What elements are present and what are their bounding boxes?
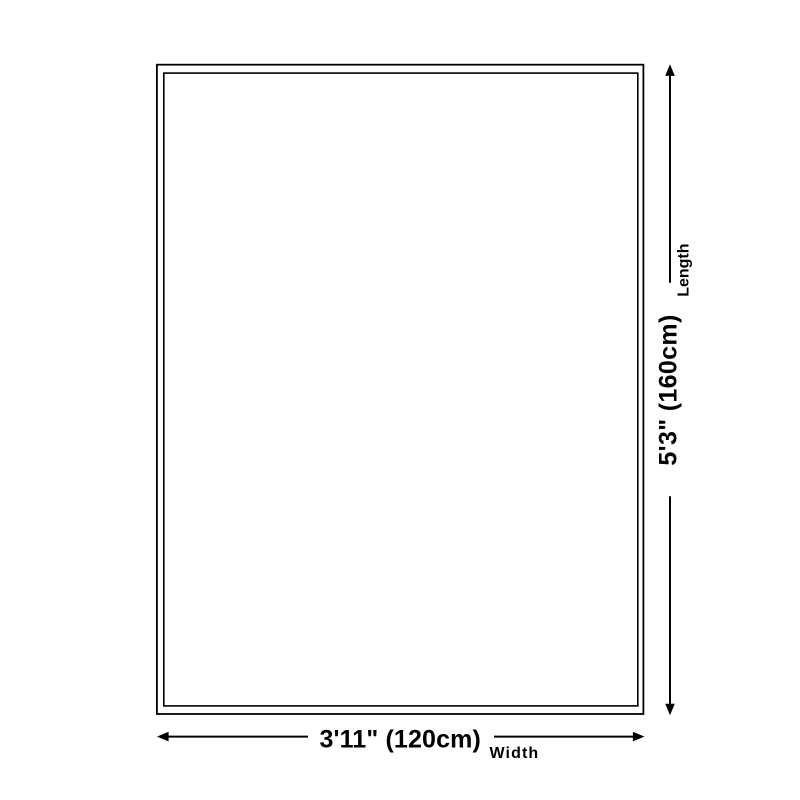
svg-text:Width: Width [490,745,540,762]
svg-text:Length: Length [676,243,693,296]
svg-text:3'11" (120cm): 3'11" (120cm) [319,726,481,754]
svg-text:5'3" (160cm): 5'3" (160cm) [654,314,682,465]
